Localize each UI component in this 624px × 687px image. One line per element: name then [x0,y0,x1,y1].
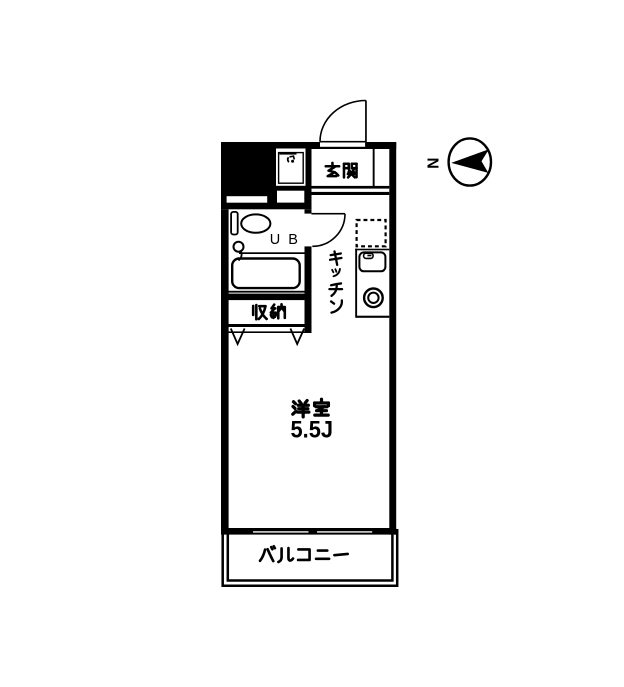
svg-text:UB: UB [270,232,306,248]
svg-text:N: N [425,158,442,169]
svg-text:5.5J: 5.5J [291,416,334,443]
